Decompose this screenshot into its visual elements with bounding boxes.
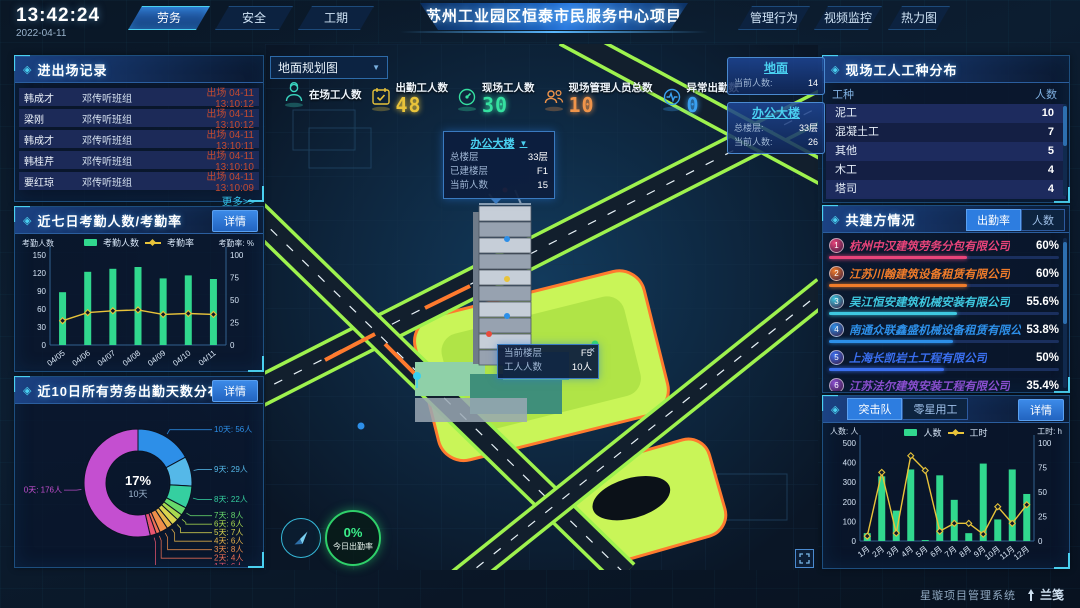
chevron-down-icon: ▼ (520, 139, 528, 148)
today-attendance-ring: 0% 今日出勤率 (325, 510, 381, 566)
trade-table-body: 泥工10混凝土工7其他5木工4塔司4 (823, 104, 1069, 199)
trade-row: 木工4 (826, 161, 1066, 180)
panel-entry-exit: ◈ 进出场记录 韩成才邓传听班组出场 04-11 13:10:12梁刚邓传听班组… (14, 55, 264, 202)
svg-text:100: 100 (230, 251, 244, 260)
svg-text:04/08: 04/08 (121, 348, 143, 368)
panel-squad-chart: ◈ 突击队 零星用工 详情 人数 工时 01002003004005000255… (822, 395, 1070, 569)
partner-company-row[interactable]: 4南通众联鑫盛机械设备租赁有限公司53.8% (829, 321, 1059, 343)
entry-exit-row: 韩成才邓传听班组出场 04-11 13:10:12 (19, 88, 259, 106)
svg-text:25: 25 (230, 319, 239, 328)
svg-text:3月: 3月 (885, 544, 900, 559)
lanjian-logo: 兰笺 (1025, 586, 1064, 603)
attendance-bar-line-chart[interactable]: 03060901201500255075100考勤人数考勤率: %04/0504… (20, 237, 256, 369)
svg-text:04/09: 04/09 (146, 348, 168, 368)
squad-tabset: 突击队 零星用工 (847, 398, 968, 420)
svg-text:120: 120 (33, 269, 47, 278)
svg-text:0天: 176人: 0天: 176人 (24, 486, 62, 495)
panel-attendance-distribution: ◈ 近10日所有劳务出勤天数分布 详情 10天: 56人9天: 29人8天: 2… (14, 376, 264, 568)
floor-tooltip: × 当前楼层F5 工人人数10人 (497, 344, 599, 379)
svg-text:75: 75 (230, 274, 239, 283)
trade-row: 混凝土工7 (826, 123, 1066, 142)
diamond-icon: ◈ (23, 384, 31, 397)
trade-row: 泥工10 (826, 104, 1066, 123)
clock: 13:42:24 2022-04-11 (16, 5, 100, 39)
partner-company-row[interactable]: 2江苏川翰建筑设备租赁有限公司60% (829, 265, 1059, 287)
fullscreen-expand-icon[interactable] (795, 549, 814, 568)
tab-relitu[interactable]: 热力图 (888, 6, 950, 30)
trade-row: 其他5 (826, 142, 1066, 161)
svg-text:200: 200 (843, 498, 857, 507)
svg-text:人数: 人: 人数: 人 (830, 426, 858, 436)
tab-attendance-rate[interactable]: 出勤率 (966, 209, 1021, 231)
svg-text:0: 0 (42, 341, 47, 350)
detail-button[interactable]: 详情 (1018, 399, 1064, 421)
partner-company-row[interactable]: 3吴江恒安建筑机械安装有限公司55.6% (829, 293, 1059, 315)
ground-card[interactable]: 地面 当前人数:14 (727, 57, 825, 95)
stat-field-workers: 现场工人数30 (455, 80, 535, 115)
trade-table-header: 工种人数 (823, 83, 1069, 104)
svg-text:04/06: 04/06 (71, 348, 93, 368)
tab-headcount[interactable]: 人数 (1021, 209, 1065, 231)
svg-text:60: 60 (37, 305, 46, 314)
scrollbar-thumb[interactable] (1063, 106, 1067, 146)
chevron-down-icon: ▼ (372, 63, 380, 72)
people-icon (542, 84, 566, 112)
tooltip-row: 当前人数15 (450, 179, 548, 193)
svg-text:12月: 12月 (1012, 544, 1031, 562)
svg-text:90: 90 (37, 287, 46, 296)
svg-text:400: 400 (843, 459, 857, 468)
svg-text:300: 300 (843, 478, 857, 487)
dashboard-root: 13:42:24 2022-04-11 劳务 安全 工期 苏州工业园区恒泰市民服… (0, 0, 1080, 608)
entry-exit-list: 韩成才邓传听班组出场 04-11 13:10:12梁刚邓传听班组出场 04-11… (15, 83, 263, 190)
navigation-arrow-icon (290, 527, 312, 549)
page-title: 苏州工业园区恒泰市民服务中心项目 (420, 3, 688, 30)
svg-text:30: 30 (37, 323, 46, 332)
entry-exit-row: 梁刚邓传听班组出场 04-11 13:10:12 (19, 109, 259, 127)
partners-tabset: 出勤率 人数 (966, 209, 1065, 231)
attendance-days-donut-chart[interactable]: 10天: 56人9天: 29人8天: 22人7天: 8人6天: 6人5天: 7人… (20, 405, 256, 565)
entry-exit-row: 韩桂芹邓传听班组出场 04-11 13:10:10 (19, 151, 259, 169)
office-building-card[interactable]: 办公大楼 总楼层:33层 当前人数:26 (727, 102, 825, 154)
svg-text:17%: 17% (125, 473, 151, 488)
svg-text:04/11: 04/11 (197, 348, 218, 367)
svg-text:0: 0 (1038, 537, 1043, 546)
trade-row: 塔司4 (826, 180, 1066, 199)
tooltip-row: 工人人数10人 (504, 361, 592, 375)
svg-text:25: 25 (1038, 513, 1047, 522)
rank-badge: 4 (829, 322, 844, 337)
logo-mark-icon (1025, 588, 1037, 602)
svg-text:5月: 5月 (914, 544, 929, 559)
tooltip-row: 当前楼层F5 (504, 347, 592, 361)
diamond-icon: ◈ (23, 214, 31, 227)
svg-text:0: 0 (230, 341, 235, 350)
gauge-icon (455, 84, 479, 112)
svg-text:150: 150 (33, 251, 47, 260)
system-name: 星璇项目管理系统 (920, 587, 1016, 603)
scrollbar (1063, 238, 1067, 388)
worker-icon (282, 80, 306, 108)
banner-underline (400, 31, 708, 33)
tab-lingxingyonggong[interactable]: 零星用工 (902, 398, 968, 420)
office-tower (473, 188, 531, 366)
entry-exit-row: 要红琼邓传听班组出场 04-11 13:10:09 (19, 172, 259, 190)
rank-badge: 5 (829, 350, 844, 365)
svg-text:工时: h: 工时: h (1037, 426, 1062, 436)
rank-badge: 6 (829, 378, 844, 391)
svg-text:1月: 1月 (856, 544, 871, 559)
svg-text:50: 50 (1038, 488, 1047, 497)
svg-text:考勤率: %: 考勤率: % (218, 238, 254, 248)
diamond-icon: ◈ (831, 213, 839, 226)
diamond-icon: ◈ (831, 63, 839, 76)
svg-text:04/10: 04/10 (171, 348, 193, 368)
diamond-icon: ◈ (23, 63, 31, 76)
stat-managers-total: 现场管理人员总数10 (542, 80, 653, 115)
tooltip-row: 已建楼层F1 (450, 165, 548, 179)
tab-tujidui[interactable]: 突击队 (847, 398, 902, 420)
svg-text:考勤人数: 考勤人数 (22, 238, 54, 248)
tooltip-row: 总楼层33层 (450, 151, 548, 165)
partner-company-row[interactable]: 1杭州中汉建筑劳务分包有限公司60% (829, 237, 1059, 259)
diamond-icon: ◈ (831, 403, 839, 416)
scrollbar (1063, 104, 1067, 196)
pulse-icon (660, 84, 684, 112)
svg-text:1天: 6人: 1天: 6人 (214, 562, 243, 565)
stat-attending-workers: 出勤工人数48 (369, 80, 449, 115)
svg-text:0: 0 (852, 537, 857, 546)
svg-text:75: 75 (1038, 464, 1047, 473)
partner-company-row[interactable]: 6江苏法尔建筑安装工程有限公司35.4% (829, 377, 1059, 391)
svg-text:9天: 29人: 9天: 29人 (214, 465, 248, 474)
svg-text:7月: 7月 (943, 544, 958, 559)
calendar-icon (369, 84, 393, 112)
tab-laowu[interactable]: 劳务 (128, 6, 210, 30)
tab-gongqi[interactable]: 工期 (298, 6, 374, 30)
stat-onsite-workers: 在场工人数 (282, 80, 362, 108)
building-tooltip: 办公大楼 ▼ 总楼层33层 已建楼层F1 当前人数15 (443, 131, 555, 199)
partner-company-row[interactable]: 5上海长凯岩土工程有限公司50% (829, 349, 1059, 371)
rank-badge: 1 (829, 238, 844, 253)
svg-text:500: 500 (843, 439, 857, 448)
svg-text:2月: 2月 (871, 544, 886, 559)
footer: 星璇项目管理系统 兰笺 (920, 586, 1064, 603)
panel-partners: ◈ 共建方情况 出勤率 人数 1杭州中汉建筑劳务分包有限公司60%2江苏川翰建筑… (822, 205, 1070, 393)
scrollbar-thumb[interactable] (1063, 242, 1067, 324)
close-icon[interactable]: × (590, 345, 595, 355)
panel-attendance-chart: ◈ 近七日考勤人数/考勤率 详情 考勤人数 考勤率 03060901201500… (14, 206, 264, 372)
svg-text:6月: 6月 (929, 544, 944, 559)
svg-text:04/07: 04/07 (96, 348, 118, 368)
svg-text:100: 100 (843, 517, 857, 526)
svg-text:4月: 4月 (900, 544, 915, 559)
svg-text:04/05: 04/05 (45, 348, 67, 368)
rank-badge: 3 (829, 294, 844, 309)
tab-shipinjiankong[interactable]: 视频监控 (814, 6, 882, 30)
partners-list: 1杭州中汉建筑劳务分包有限公司60%2江苏川翰建筑设备租赁有限公司60%3吴江恒… (823, 233, 1069, 391)
entry-exit-row: 韩成才邓传听班组出场 04-11 13:10:11 (19, 130, 259, 148)
detail-button[interactable]: 详情 (212, 210, 258, 232)
detail-button[interactable]: 详情 (212, 380, 258, 402)
svg-text:8天: 22人: 8天: 22人 (214, 495, 248, 504)
svg-text:100: 100 (1038, 439, 1052, 448)
svg-text:10天: 56人: 10天: 56人 (214, 425, 252, 434)
rank-badge: 2 (829, 266, 844, 281)
compass-control[interactable] (281, 518, 321, 558)
svg-text:10天: 10天 (128, 489, 147, 499)
svg-text:50: 50 (230, 296, 239, 305)
tab-anquan[interactable]: 安全 (215, 6, 293, 30)
building-tooltip-title[interactable]: 办公大楼 ▼ (450, 135, 548, 151)
site-stats-row: 在场工人数 出勤工人数48 现场工人数30 现场管理人员总数10 异常出勤数0 (282, 80, 728, 115)
panel-trade-distribution: ◈ 现场工人工种分布 工种人数 泥工10混凝土工7其他5木工4塔司4 (822, 55, 1070, 203)
clock-time: 13:42:24 (16, 5, 100, 27)
tab-guanlixingwei[interactable]: 管理行为 (738, 6, 810, 30)
clock-date: 2022-04-11 (16, 28, 100, 39)
svg-text:8月: 8月 (958, 544, 973, 559)
squad-bar-line-chart[interactable]: 01002003004005000255075100人数: 人工时: h1月2月… (828, 425, 1064, 565)
map-layer-dropdown[interactable]: 地面规划图 ▼ (270, 56, 388, 79)
